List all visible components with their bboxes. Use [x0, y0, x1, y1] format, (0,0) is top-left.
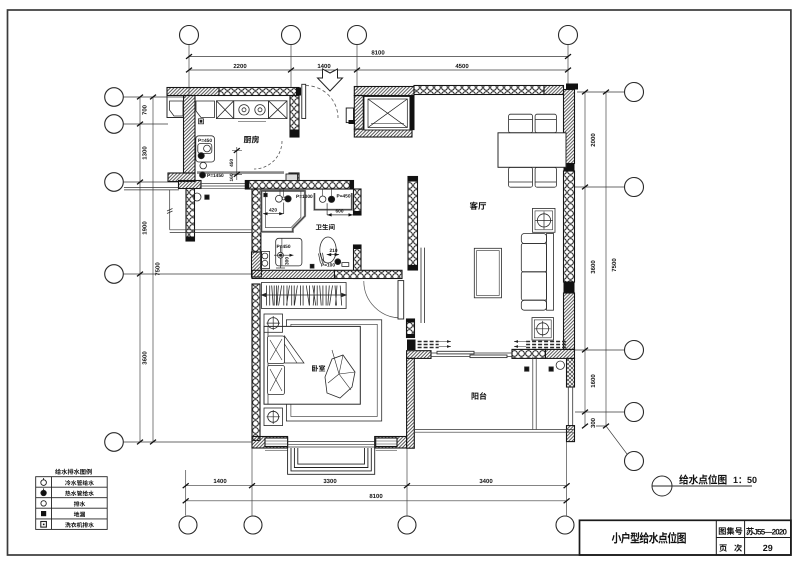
svg-text:2200: 2200: [233, 63, 247, 70]
svg-text:1600: 1600: [590, 374, 597, 388]
svg-text:P=450: P=450: [277, 244, 291, 250]
svg-text:450: 450: [229, 159, 235, 167]
svg-text:1300: 1300: [142, 146, 149, 160]
svg-text:4500: 4500: [455, 63, 469, 70]
svg-text:300: 300: [590, 417, 597, 428]
svg-text:700: 700: [142, 104, 149, 115]
svg-text:160: 160: [229, 173, 235, 181]
svg-text:1400: 1400: [213, 478, 227, 485]
svg-text:2000: 2000: [590, 133, 597, 147]
svg-text:1：50: 1：50: [733, 475, 757, 485]
svg-text:600: 600: [335, 209, 343, 215]
svg-text:P=100: P=100: [321, 263, 335, 269]
svg-text:420: 420: [269, 208, 277, 214]
svg-text:1400: 1400: [317, 63, 331, 70]
svg-text:7500: 7500: [611, 258, 618, 272]
svg-text:3400: 3400: [479, 478, 493, 485]
svg-text:8100: 8100: [369, 493, 383, 500]
svg-text:29: 29: [763, 543, 773, 553]
svg-text:210: 210: [330, 248, 338, 254]
svg-text:3300: 3300: [323, 478, 337, 485]
svg-text:P=1450: P=1450: [207, 173, 224, 179]
svg-text:300: 300: [285, 257, 291, 265]
svg-text:3600: 3600: [590, 260, 597, 274]
svg-text:3600: 3600: [142, 351, 149, 365]
svg-text:J55—2020: J55—2020: [754, 528, 788, 537]
svg-text:1900: 1900: [142, 221, 149, 235]
svg-text:7500: 7500: [155, 262, 162, 276]
svg-text:P=1000: P=1000: [296, 194, 313, 200]
svg-text:P=450: P=450: [337, 194, 351, 200]
svg-text:8100: 8100: [371, 49, 385, 56]
svg-text:P=450: P=450: [198, 138, 212, 144]
